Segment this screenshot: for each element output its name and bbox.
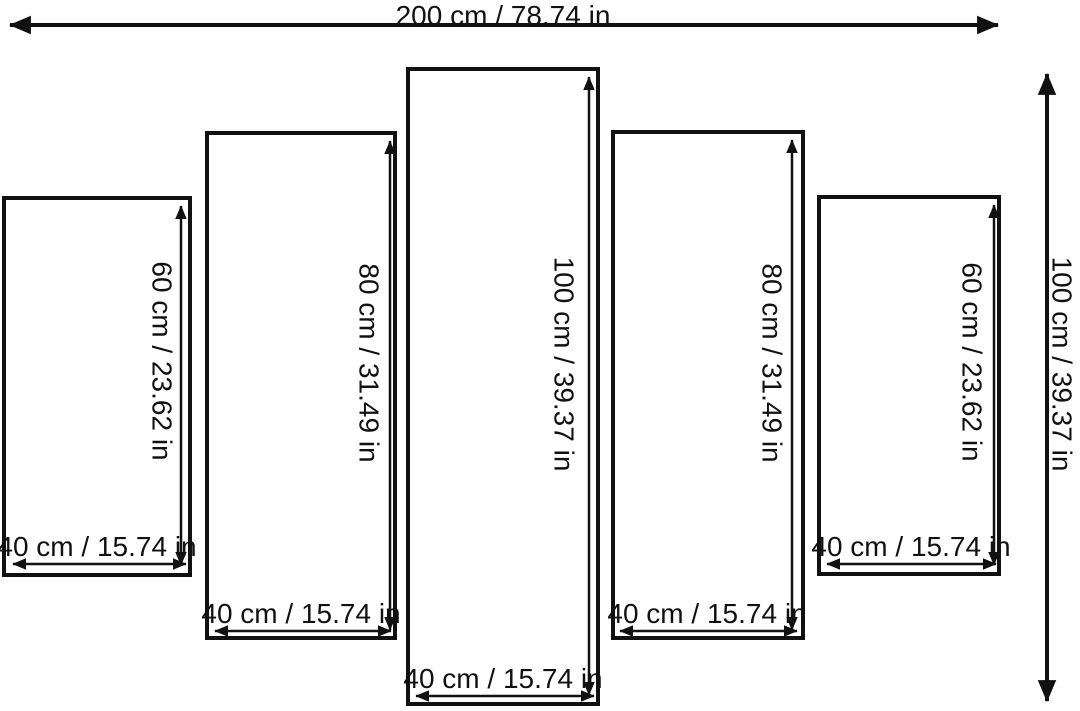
panel-center-height-label: 100 cm / 39.37 in xyxy=(549,257,580,472)
panel-right-height-label: 80 cm / 31.49 in xyxy=(757,263,788,462)
panel-left-width-label: 40 cm / 15.74 in xyxy=(201,598,400,629)
panel-far-right-width-label: 40 cm / 15.74 in xyxy=(811,531,1010,562)
panel-far-left-height-label: 60 cm / 23.62 in xyxy=(147,261,178,460)
panel-right-width-label: 40 cm / 15.74 in xyxy=(607,598,806,629)
panel-left-height-label: 80 cm / 31.49 in xyxy=(354,263,385,462)
overall-width-label: 200 cm / 78.74 in xyxy=(396,0,611,31)
overall-height-label: 100 cm / 39.37 in xyxy=(1047,257,1078,472)
panel-far-left-width-label: 40 cm / 15.74 in xyxy=(0,531,197,562)
panel-far-right-height-label: 60 cm / 23.62 in xyxy=(957,262,988,461)
panel-center-width-label: 40 cm / 15.74 in xyxy=(403,663,602,694)
panel-size-diagram: 200 cm / 78.74 in 100 cm / 39.37 in 60 c… xyxy=(0,0,1080,711)
